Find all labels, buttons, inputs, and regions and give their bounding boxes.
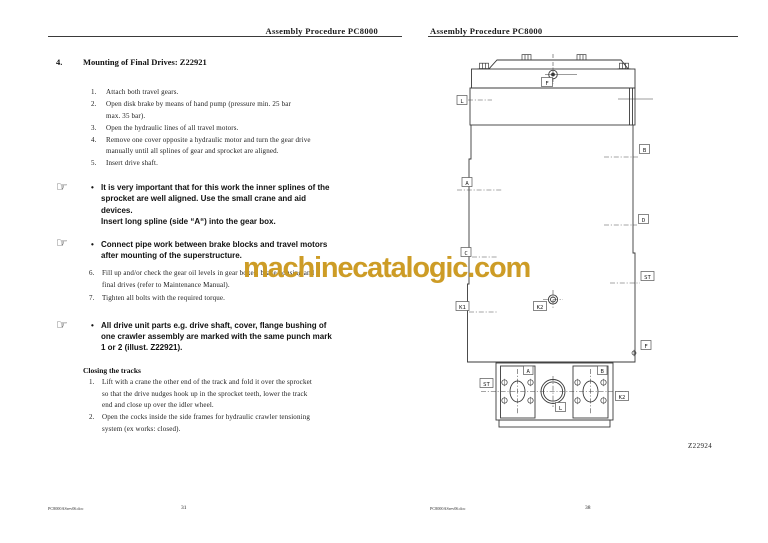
step-number: 7. <box>89 293 94 305</box>
bolt-symbols <box>478 55 631 69</box>
pointing-hand-icon: ☞ <box>56 319 68 332</box>
frame-band <box>470 88 635 125</box>
left-footer-filename: PC8000ASrev06.doc <box>48 506 83 511</box>
step-text: Lift with a crane the other end of the t… <box>102 377 387 412</box>
right-page-number: 38 <box>585 505 591 511</box>
watermark: machinecatalogic.com <box>243 252 530 285</box>
bottom-rail <box>499 420 610 427</box>
left-page-header: Assembly Procedure PC8000 <box>208 26 378 36</box>
figure-code: Z22924 <box>688 442 712 450</box>
final-drive-diagram: F L B A D C ST K1 K2 A B ST K2 L F <box>450 52 670 444</box>
label-ST-bottom: ST <box>483 382 490 388</box>
step-text: Open the cocks inside the side frames fo… <box>102 412 387 435</box>
diagram-outline <box>468 54 654 427</box>
right-footer-filename: PC8000ASrev06.doc <box>430 506 465 511</box>
label-ST-side: ST <box>644 275 651 281</box>
section-title: Mounting of Final Drives: Z22921 <box>83 57 207 67</box>
left-page-number: 31 <box>181 505 187 511</box>
closing-heading: Closing the tracks <box>83 366 141 375</box>
main-body <box>468 125 636 362</box>
note-text: It is very important that for this work … <box>101 182 393 227</box>
step-number: 6. <box>89 268 94 280</box>
label-K2-side: K2 <box>537 305 544 311</box>
right-page-header: Assembly Procedure PC8000 <box>430 26 542 36</box>
step-number: 3. <box>91 123 96 135</box>
pointing-hand-icon: ☞ <box>56 181 68 194</box>
note-bullet: • <box>91 320 94 331</box>
step-text: Attach both travel gears. <box>106 87 391 99</box>
label-K1-side: K1 <box>459 305 466 311</box>
step-text: Remove one cover opposite a hydraulic mo… <box>106 135 391 158</box>
right-header-rule <box>428 36 738 37</box>
document-spread: { "icons": { "pointing_hand": "☞" }, "wa… <box>0 0 768 543</box>
step-number: 1. <box>89 377 94 389</box>
step-number: 5. <box>91 158 96 170</box>
step-number: 1. <box>91 87 96 99</box>
step-text: Open the hydraulic lines of all travel m… <box>106 123 391 135</box>
label-K2-bottom: K2 <box>619 395 626 401</box>
step-number: 2. <box>91 99 96 111</box>
step-number: 2. <box>89 412 94 424</box>
note-bullet: • <box>91 182 94 193</box>
section-number: 4. <box>56 57 62 67</box>
step-text: Tighten all bolts with the required torq… <box>102 293 387 305</box>
left-header-rule <box>48 36 402 37</box>
top-rail <box>489 60 628 69</box>
pointing-hand-icon: ☞ <box>56 237 68 250</box>
step-number: 4. <box>91 135 96 147</box>
step-text: Insert drive shaft. <box>106 158 391 170</box>
note-bullet: • <box>91 239 94 250</box>
note-text: All drive unit parts e.g. drive shaft, c… <box>101 320 393 354</box>
step-text: Open disk brake by means of hand pump (p… <box>106 99 391 122</box>
